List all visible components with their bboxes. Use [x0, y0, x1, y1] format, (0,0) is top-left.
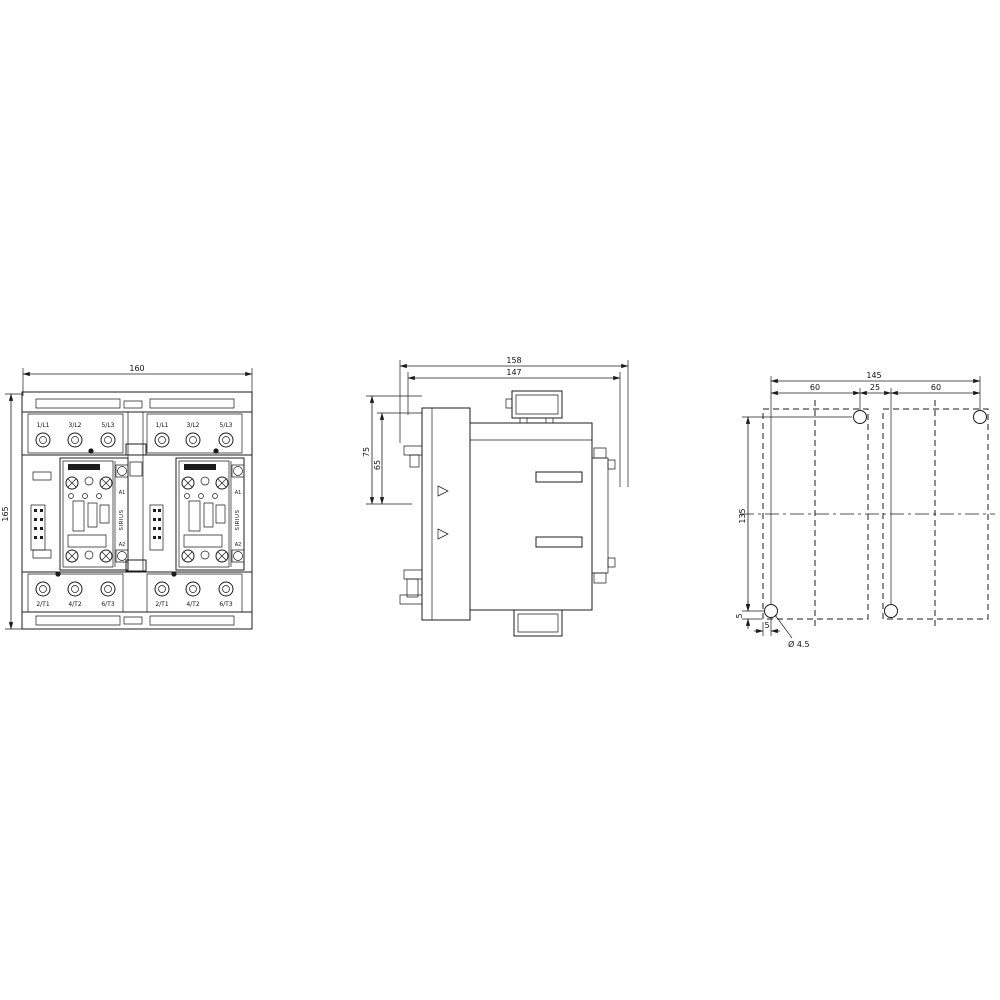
terminal-label: 4/T2 [68, 601, 82, 608]
front-width-label: 160 [129, 364, 144, 373]
drilling-pattern-view: 145 60 25 60 135 5 5 [735, 371, 995, 649]
drill-total-width-label: 145 [866, 371, 881, 380]
drill-left-span-label: 60 [810, 383, 820, 392]
front-top-terminal-strip: 1/L1 3/L2 5/L3 1/L1 3/L2 5/L3 [28, 414, 242, 453]
drill-dim-offset-horizontal: 5 [754, 621, 780, 631]
side-din-rail-clip-top [404, 446, 422, 467]
terminal-top-5: 3/L2 [186, 422, 200, 447]
front-height-label: 165 [1, 506, 10, 521]
contactor-module-right: A1 SIRIUS A2 [176, 458, 244, 570]
side-dim-front-inner: 65 [373, 413, 422, 504]
terminal-bottom-4: 2/T1 [155, 582, 169, 608]
drill-offset-horizontal-label: 5 [764, 621, 769, 630]
side-top-terminal-box [506, 391, 562, 423]
side-depth-inner-label: 147 [506, 368, 521, 377]
terminal-label: 4/T2 [186, 601, 200, 608]
side-view: 158 147 75 65 [362, 356, 628, 636]
terminal-label: 6/T3 [101, 601, 115, 608]
side-body-profile [422, 408, 592, 620]
coil-terminal-a1-label: A1 [235, 490, 242, 496]
mounting-hole-top-right [974, 411, 987, 424]
side-dim-front-outer: 75 [362, 396, 422, 504]
drill-hole-callout: Ø 4.5 [775, 615, 810, 649]
drill-dim-total-width: 145 [771, 371, 980, 381]
front-center-link-column [126, 412, 146, 572]
terminal-top-6: 5/L3 [219, 422, 233, 447]
terminal-label: 3/L2 [187, 422, 200, 429]
side-front-inner-label: 65 [373, 460, 382, 470]
dimension-drawing: 160 165 [0, 0, 1000, 1000]
terminal-bottom-6: 6/T3 [219, 582, 233, 608]
front-dim-height: 165 [1, 394, 22, 629]
dimension-drawing-page: 160 165 [0, 0, 1000, 1000]
terminal-top-1: 1/L1 [36, 422, 50, 447]
coil-terminal-a2-label: A2 [119, 542, 126, 548]
side-vent-slots [536, 472, 582, 547]
drill-dim-offset-vertical: 5 [735, 601, 748, 629]
terminal-label: 1/L1 [37, 422, 50, 429]
side-right-connector [592, 448, 615, 583]
front-mid-aux-block [150, 505, 163, 550]
brand-label-sirius: SIRIUS [235, 509, 241, 530]
terminal-top-4: 1/L1 [155, 422, 169, 447]
terminal-label: 2/T1 [155, 601, 169, 608]
coil-terminal-a1-label: A1 [119, 490, 126, 496]
side-din-rail-clip-bottom [400, 570, 422, 604]
terminal-label: 3/L2 [69, 422, 82, 429]
brand-label-sirius: SIRIUS [119, 509, 125, 530]
side-bottom-terminal-box [514, 610, 562, 636]
mounting-hole-top-left [854, 411, 867, 424]
drill-hole-diameter-label: Ø 4.5 [788, 639, 810, 649]
side-marker-triangles [438, 486, 448, 539]
drill-center-span-label: 25 [870, 383, 880, 392]
mounting-hole-bottom-right [885, 605, 898, 618]
terminal-bottom-3: 6/T3 [101, 582, 115, 608]
terminal-label: 5/L3 [102, 422, 115, 429]
terminal-label: 6/T3 [219, 601, 233, 608]
terminal-label: 1/L1 [156, 422, 169, 429]
terminal-top-3: 5/L3 [101, 422, 115, 447]
front-left-aux-parts [31, 472, 51, 558]
terminal-label: 2/T1 [36, 601, 50, 608]
terminal-label: 5/L3 [220, 422, 233, 429]
side-dim-depth-inner: 147 [408, 368, 620, 487]
terminal-bottom-5: 4/T2 [186, 582, 200, 608]
drill-extension-lines [742, 376, 980, 636]
terminal-bottom-2: 4/T2 [68, 582, 82, 608]
drill-right-span-label: 60 [931, 383, 941, 392]
drill-height-label: 135 [738, 508, 747, 523]
terminal-bottom-1: 2/T1 [36, 582, 50, 608]
side-front-outer-label: 75 [362, 447, 371, 457]
front-bottom-terminal-strip: 2/T1 4/T2 6/T3 2/T1 4/T2 6/T3 [28, 574, 242, 612]
front-dim-width: 160 [23, 364, 252, 396]
coil-terminal-a2-label: A2 [235, 542, 242, 548]
drill-dim-segments: 60 25 60 [771, 383, 980, 393]
drill-dim-height: 135 [738, 417, 748, 611]
drill-offset-vertical-label: 5 [735, 613, 744, 618]
terminal-top-2: 3/L2 [68, 422, 82, 447]
front-body-outline [22, 392, 252, 629]
side-depth-outer-label: 158 [506, 356, 521, 365]
front-view: 160 165 [1, 364, 252, 629]
contactor-module-left: A1 SIRIUS A2 [60, 458, 128, 570]
